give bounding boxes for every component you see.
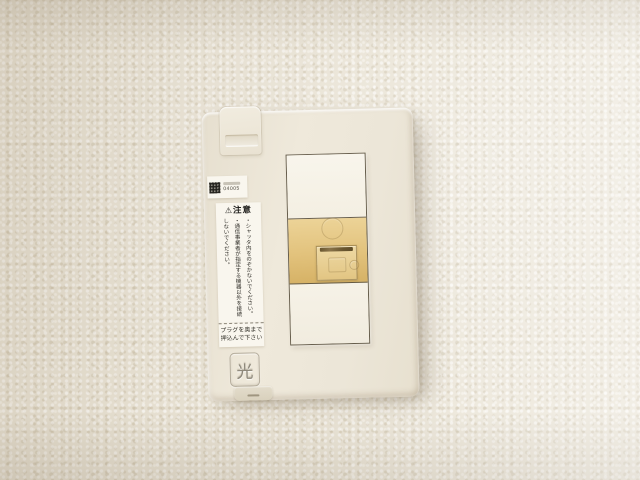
warning-line: ・通信事業者が指定する機器以外を接続しないでください。 <box>219 218 243 319</box>
module-column <box>286 153 371 346</box>
plate-bottom-tab <box>234 386 272 401</box>
plate-top-tab <box>219 106 261 155</box>
blank-module-bottom <box>290 283 369 345</box>
warning-title: 注意 <box>233 205 252 214</box>
data-matrix-icon <box>209 182 220 193</box>
embossed-dot <box>349 260 359 270</box>
warning-body-vertical-text: ・シャッタ内をのぞかないでください。 ・通信事業者が指定する機器以外を接続しない… <box>219 217 254 318</box>
shutter-slot <box>320 247 353 252</box>
optical-outlet-wall-plate: 04005 ⚠ 注意 ・シャッタ内をのぞかないでください。 ・通信事業者が指定す… <box>202 107 420 401</box>
plug-instruction-sticker: プラグを奥まで 押込んで下さい <box>219 322 265 347</box>
embossed-logo <box>225 134 258 147</box>
serial-number: 04005 <box>223 187 240 192</box>
wall-background: 04005 ⚠ 注意 ・シャッタ内をのぞかないでください。 ・通信事業者が指定す… <box>0 0 640 480</box>
tab-slot <box>247 394 259 396</box>
hikari-optical-marking: 光 <box>229 352 260 387</box>
serial-sticker: 04005 <box>207 176 248 199</box>
warning-triangle-icon: ⚠ <box>225 206 232 215</box>
serial-sticker-fineprint <box>223 182 240 185</box>
blank-module-top <box>287 154 367 220</box>
optical-jack-module <box>288 218 368 285</box>
embossed-circle <box>321 217 344 240</box>
warning-header: ⚠ 注意 <box>219 205 258 215</box>
warning-sticker: ⚠ 注意 ・シャッタ内をのぞかないでください。 ・通信事業者が指定する機器以外を… <box>216 202 264 323</box>
plug-instruction-line: 押込んで下さい <box>219 334 264 343</box>
shutter-emboss-mark <box>328 257 346 272</box>
